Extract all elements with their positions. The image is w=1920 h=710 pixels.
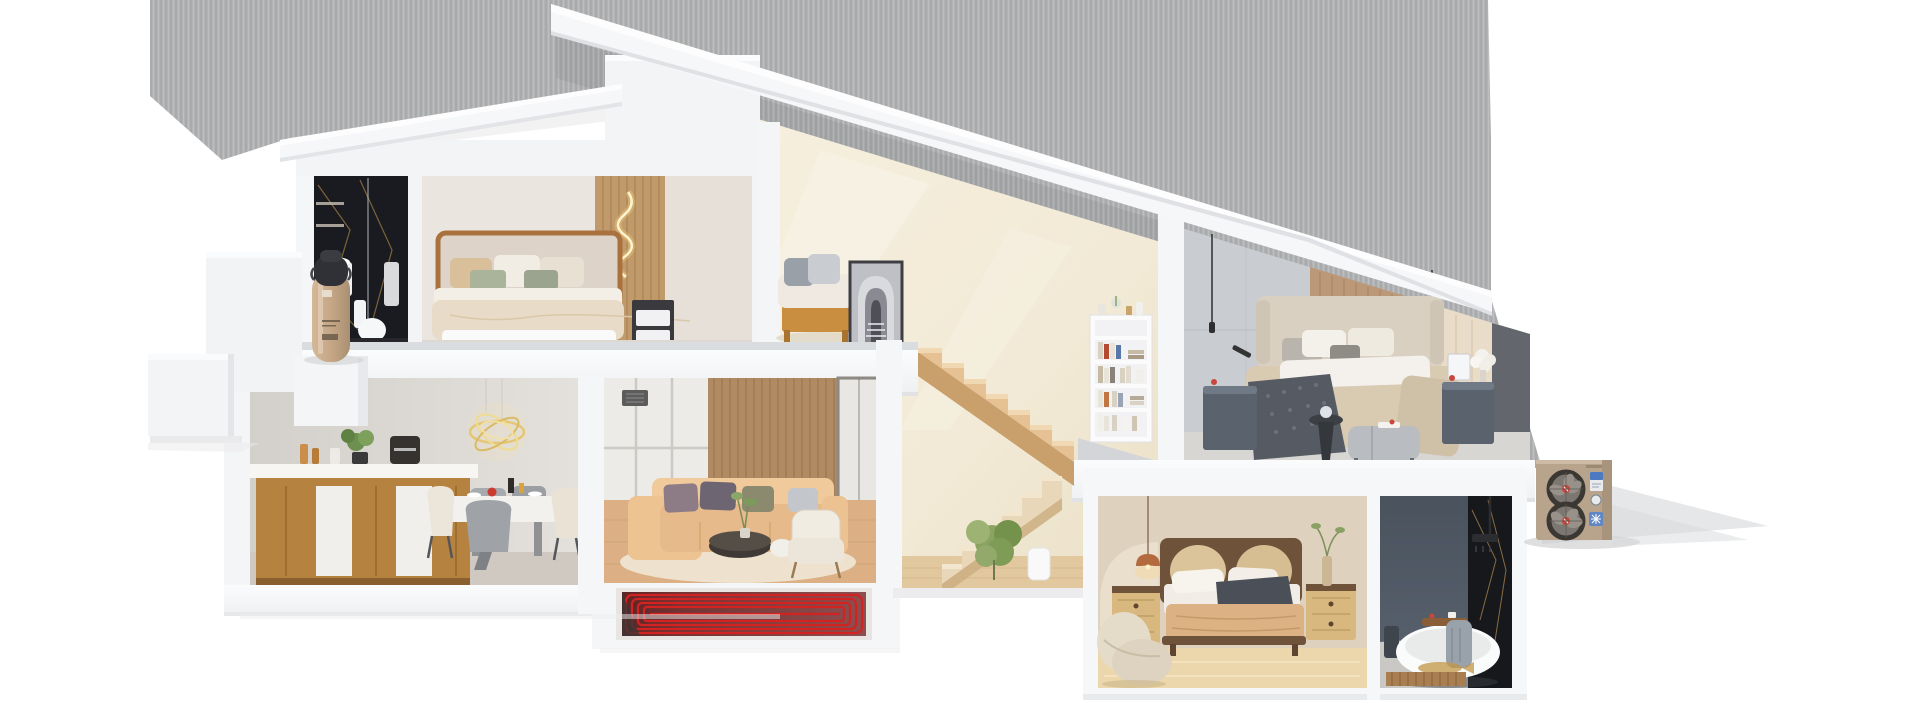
guest-bed [1160, 538, 1306, 656]
foot-bench [1348, 420, 1420, 467]
lower-right-box [1083, 468, 1527, 700]
wood-slat-mat [1386, 672, 1466, 686]
hall-under-shadow [893, 588, 1088, 598]
red-bowl [488, 488, 497, 497]
dark-bottle [508, 478, 514, 493]
wall-divider [408, 150, 422, 352]
lower-bathroom [1380, 496, 1512, 688]
nook-left-wall [756, 122, 780, 348]
bed-rail [1162, 636, 1306, 645]
cane-nightstand-right [1306, 584, 1356, 640]
nightstand-right [1442, 349, 1496, 444]
living-hall-wall [876, 340, 902, 588]
house-cutaway-illustration [0, 0, 1920, 710]
bookshelf [1090, 296, 1152, 442]
niche-shelf [316, 202, 344, 205]
heat-pump-fan-top [1548, 472, 1584, 506]
cushion-plum [700, 481, 737, 510]
guest-bedroom [1097, 496, 1367, 688]
draped-towel [1446, 620, 1472, 668]
cushion-light [808, 254, 840, 284]
cushion-mauve [663, 483, 698, 513]
book-on-bench [1378, 422, 1400, 428]
pillow-sage [524, 270, 558, 290]
decor-red [1211, 379, 1217, 385]
niche-shelf [316, 224, 344, 227]
room-divider-wall [1367, 482, 1380, 700]
left-stub-block [148, 354, 234, 436]
render-canvas [0, 0, 1920, 710]
master-bedroom [422, 172, 752, 352]
roof-post [1158, 214, 1184, 462]
plant-pot [352, 452, 368, 464]
living-room [600, 378, 880, 585]
candle [1430, 614, 1435, 619]
tan-blanket [1166, 604, 1304, 640]
chandelier-glow [467, 402, 527, 462]
pillow-sage [470, 270, 506, 290]
round-badge [1591, 495, 1601, 505]
kitchen-living-divider [578, 376, 604, 614]
tank-logo [322, 290, 332, 297]
tank-pedestal [294, 356, 368, 426]
snowflake-sticker [1589, 512, 1603, 526]
yellow-bottle [519, 483, 524, 493]
brand-mark [1586, 465, 1602, 468]
heat-pump-fan-bottom [1548, 504, 1583, 538]
nightstand-left [1203, 379, 1257, 450]
towel [384, 262, 399, 306]
energy-label-sticker [1590, 472, 1603, 491]
white-vase [1028, 548, 1050, 580]
cushion-gray [788, 488, 818, 512]
glass-ball-decor [1320, 406, 1332, 418]
arch-artwork [850, 262, 902, 344]
